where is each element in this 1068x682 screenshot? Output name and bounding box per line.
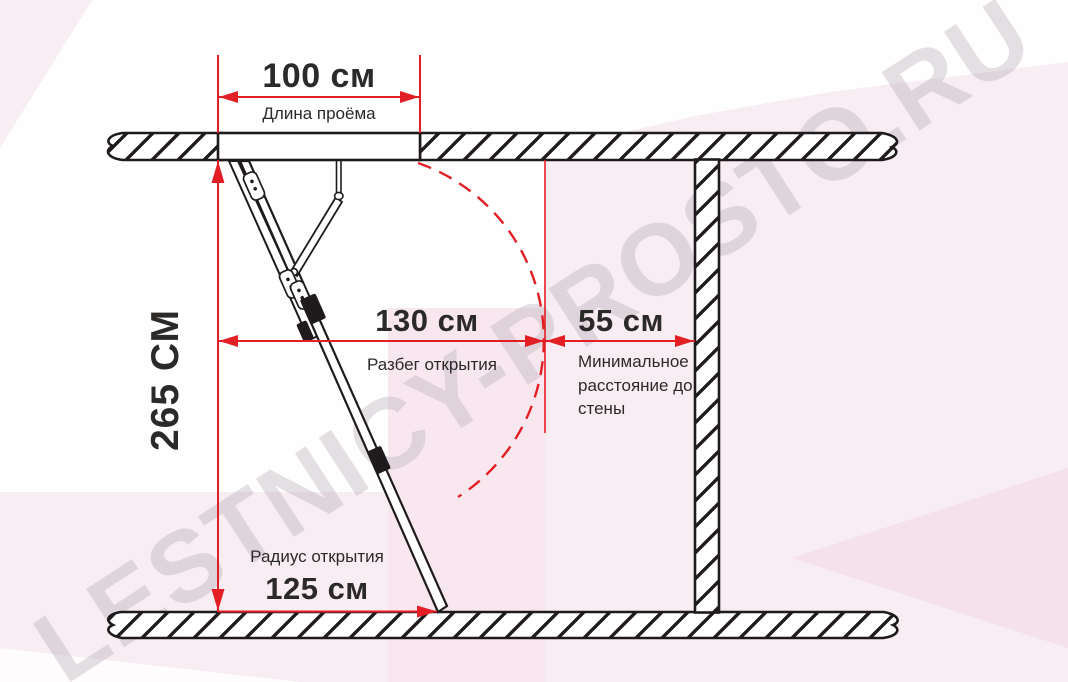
- wall-distance-value: 55 см: [546, 302, 696, 339]
- ceiling-opening: [218, 133, 420, 160]
- opening-run-value: 130 см: [327, 302, 527, 339]
- opening-length-label: Длина проёма: [218, 104, 420, 124]
- attic-ladder-dimensions-diagram: LESTNICY-PROSTO.RU: [0, 0, 1068, 682]
- arrowhead: [219, 335, 238, 347]
- arrowhead: [212, 161, 225, 183]
- opening-run-label: Разбег открытия: [332, 355, 532, 375]
- opening-radius-value: 125 см: [217, 570, 417, 607]
- ceiling-left-slab: [108, 133, 222, 160]
- ceiling-height-value: 265 СМ: [144, 290, 188, 470]
- strut-pivot: [335, 192, 343, 199]
- wall-distance-label: Минимальное расстояние до стены: [578, 350, 700, 421]
- ceiling-structure: [108, 133, 897, 160]
- ceiling-right-slab: [420, 133, 897, 160]
- arrowhead: [525, 335, 544, 347]
- floor-structure: [108, 612, 897, 638]
- opening-length-value: 100 см: [218, 57, 420, 95]
- ladder-rail: [240, 161, 447, 612]
- folding-ladder: [229, 160, 447, 612]
- opening-radius-label: Радиус открытия: [217, 547, 417, 567]
- support-strut: [291, 160, 343, 276]
